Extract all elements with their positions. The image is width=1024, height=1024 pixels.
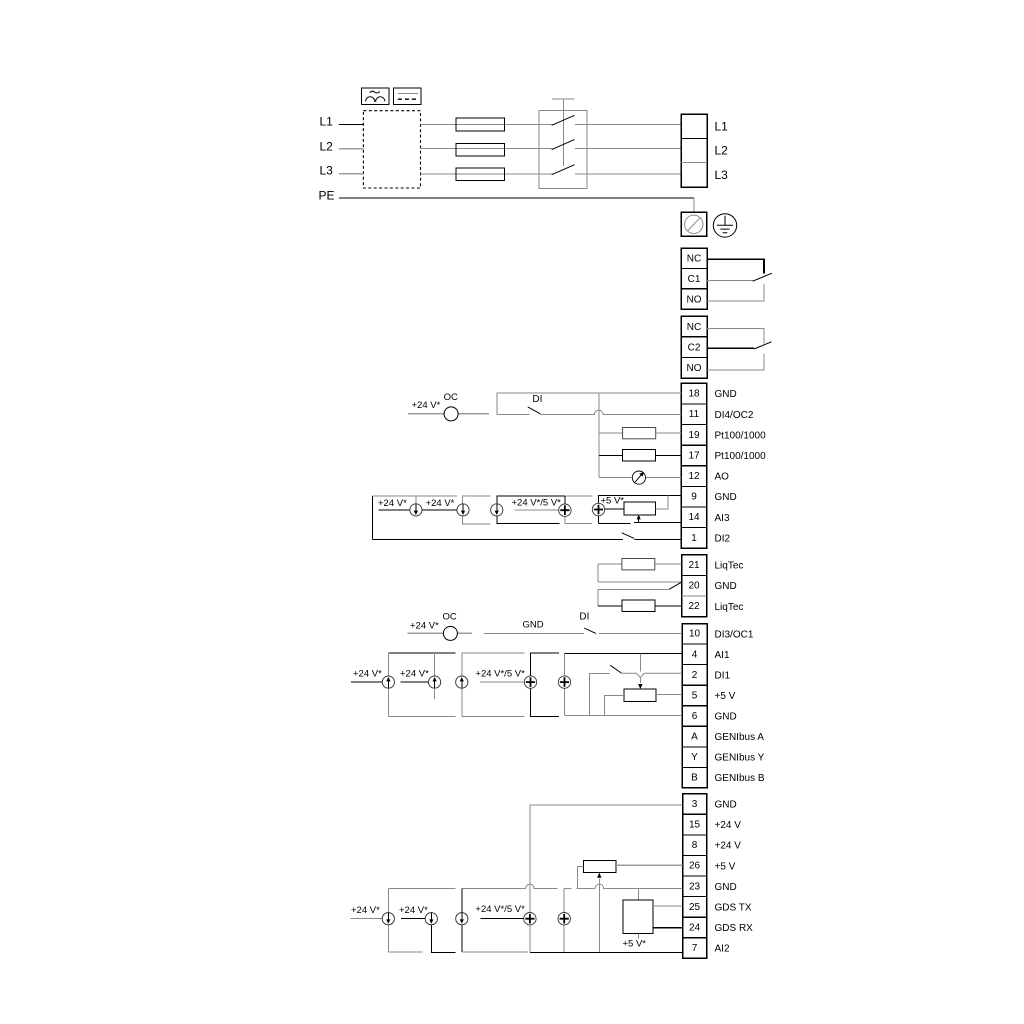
svg-text:OC: OC: [443, 612, 457, 623]
svg-text:GDS TX: GDS TX: [715, 902, 752, 913]
svg-text:26: 26: [689, 861, 701, 872]
svg-text:L3: L3: [320, 164, 334, 178]
svg-text:L2: L2: [320, 139, 334, 153]
svg-text:4: 4: [692, 649, 698, 660]
svg-text:+24 V*/5 V*: +24 V*/5 V*: [475, 669, 525, 680]
svg-text:C2: C2: [688, 343, 701, 354]
svg-text:DI: DI: [579, 612, 589, 623]
svg-text:+5 V: +5 V: [715, 861, 736, 872]
svg-text:25: 25: [689, 902, 701, 913]
svg-text:7: 7: [692, 943, 698, 954]
svg-text:+24 V*: +24 V*: [426, 498, 455, 509]
svg-text:NO: NO: [687, 294, 702, 305]
svg-text:20: 20: [688, 581, 700, 592]
svg-text:2: 2: [692, 670, 698, 681]
svg-text:GND: GND: [715, 581, 737, 592]
svg-text:+24 V*: +24 V*: [412, 400, 441, 411]
svg-text:10: 10: [689, 629, 701, 640]
svg-text:+24 V: +24 V: [715, 841, 742, 852]
svg-text:LiqTec: LiqTec: [715, 561, 744, 572]
svg-text:3: 3: [692, 799, 698, 810]
svg-text:+5 V: +5 V: [715, 691, 736, 702]
svg-text:GND: GND: [715, 712, 737, 723]
svg-text:DI4/OC2: DI4/OC2: [715, 410, 754, 421]
svg-text:L2: L2: [715, 144, 729, 158]
svg-text:L1: L1: [320, 115, 334, 129]
svg-text:GND: GND: [715, 492, 737, 503]
svg-text:OC: OC: [444, 392, 458, 403]
svg-text:GDS RX: GDS RX: [715, 923, 754, 934]
svg-text:NC: NC: [687, 322, 701, 333]
svg-text:+24 V*: +24 V*: [399, 905, 428, 916]
svg-text:+5 V*: +5 V*: [601, 495, 625, 506]
svg-text:B: B: [691, 773, 698, 784]
svg-text:GND: GND: [523, 620, 544, 631]
svg-text:12: 12: [688, 471, 700, 482]
svg-text:AI2: AI2: [715, 944, 730, 955]
svg-text:+24 V*: +24 V*: [400, 669, 429, 680]
svg-text:Pt100/1000: Pt100/1000: [715, 430, 767, 441]
svg-text:GND: GND: [715, 882, 737, 893]
svg-text:GND: GND: [715, 800, 737, 811]
svg-text:+24 V*: +24 V*: [378, 498, 407, 509]
svg-text:+5 V*: +5 V*: [623, 938, 647, 949]
svg-text:23: 23: [689, 881, 701, 892]
svg-text:24: 24: [689, 922, 701, 933]
svg-text:+24 V*: +24 V*: [351, 905, 380, 916]
svg-text:L1: L1: [715, 119, 729, 133]
svg-text:NC: NC: [687, 254, 701, 265]
svg-text:19: 19: [688, 430, 700, 441]
svg-text:8: 8: [692, 840, 698, 851]
svg-text:+24 V*: +24 V*: [353, 669, 382, 680]
svg-text:DI1: DI1: [715, 670, 731, 681]
svg-text:17: 17: [688, 450, 700, 461]
svg-text:21: 21: [688, 560, 700, 571]
svg-text:NO: NO: [687, 363, 702, 374]
svg-text:GND: GND: [715, 389, 737, 400]
svg-text:+24 V: +24 V: [715, 820, 742, 831]
svg-text:+24 V*/5 V*: +24 V*/5 V*: [475, 904, 525, 915]
svg-text:+24 V*/5 V*: +24 V*/5 V*: [512, 498, 562, 509]
svg-text:GENIbus B: GENIbus B: [715, 773, 765, 784]
svg-text:5: 5: [692, 690, 698, 701]
svg-text:15: 15: [689, 820, 701, 831]
svg-text:AI1: AI1: [715, 650, 730, 661]
svg-text:22: 22: [688, 601, 700, 612]
svg-text:14: 14: [688, 512, 700, 523]
svg-text:AI3: AI3: [715, 513, 730, 524]
svg-text:DI3/OC1: DI3/OC1: [715, 629, 754, 640]
svg-text:+24 V*: +24 V*: [410, 620, 439, 631]
svg-text:11: 11: [689, 409, 700, 420]
svg-text:GENIbus A: GENIbus A: [715, 732, 765, 743]
svg-text:9: 9: [691, 492, 697, 503]
svg-text:18: 18: [688, 389, 700, 400]
svg-text:Pt100/1000: Pt100/1000: [715, 451, 767, 462]
svg-text:6: 6: [692, 711, 698, 722]
svg-text:GENIbus Y: GENIbus Y: [715, 753, 765, 764]
svg-text:A: A: [691, 732, 698, 743]
svg-text:LiqTec: LiqTec: [715, 602, 744, 613]
svg-text:AO: AO: [715, 472, 730, 483]
svg-text:DI2: DI2: [715, 533, 731, 544]
svg-text:DI: DI: [532, 394, 542, 405]
svg-text:Y: Y: [691, 752, 698, 763]
svg-text:1: 1: [691, 533, 697, 544]
svg-text:L3: L3: [715, 168, 729, 182]
svg-text:C1: C1: [688, 274, 701, 285]
svg-text:PE: PE: [319, 189, 335, 203]
